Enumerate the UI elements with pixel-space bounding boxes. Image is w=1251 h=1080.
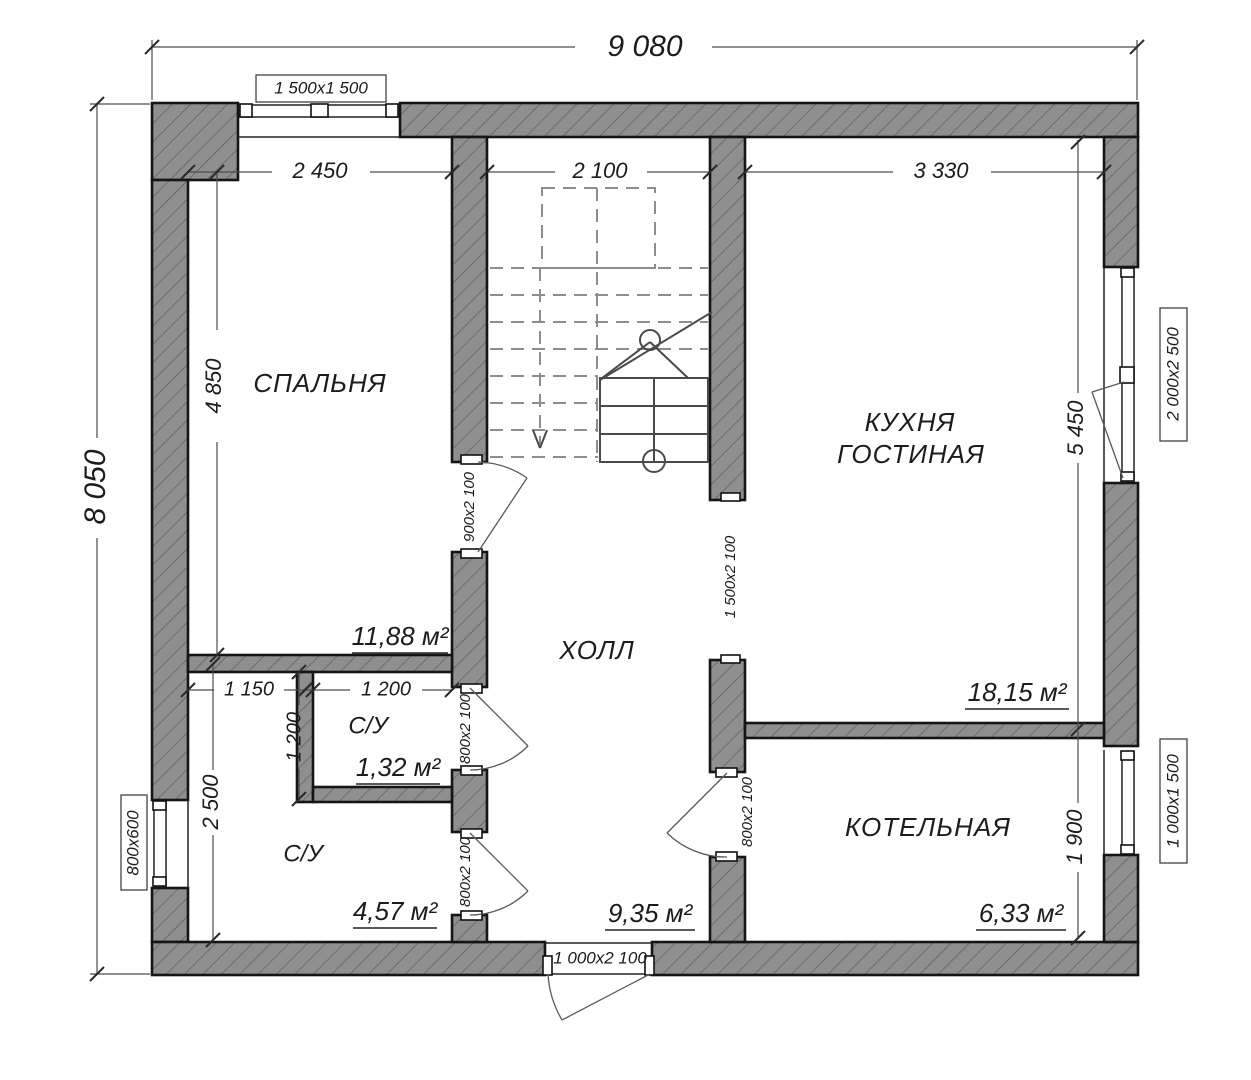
- area-kitchen: 18,15 м²: [968, 677, 1068, 707]
- window-label-top-text: 1 500x1 500: [274, 78, 368, 97]
- wall-right-lower: [1104, 855, 1138, 942]
- door-boiler: [667, 768, 737, 861]
- door-label-su-small: 800x2 100: [457, 693, 474, 764]
- dim-su-small-width: 1 200: [361, 678, 411, 700]
- wall-bedroom-stairs-1: [452, 137, 487, 462]
- room-label-hall: ХОЛЛ: [558, 635, 634, 665]
- window-left: [153, 800, 188, 888]
- window-label-left: 800x600: [121, 795, 147, 890]
- dim-bedroom-height: 4 850: [201, 358, 226, 414]
- window-kitchen: [1092, 267, 1134, 483]
- wall-top-left-corner: [152, 103, 238, 180]
- wall-hall-boiler-1: [710, 660, 745, 772]
- stair-post-top: [640, 330, 660, 350]
- wall-right-upper: [1104, 137, 1138, 267]
- wall-kitchen-boiler: [745, 723, 1104, 738]
- wall-stairs-kitchen: [710, 137, 745, 500]
- window-label-kitchen: 2 000x2 500: [1160, 308, 1187, 441]
- window-label-boiler-text: 1 000x1 500: [1163, 754, 1182, 848]
- area-su-small: 1,32 м²: [356, 752, 442, 782]
- area-su-big: 4,57 м²: [353, 896, 439, 926]
- staircase: [490, 188, 712, 472]
- room-label-kitchen-line1: КУХНЯ: [865, 407, 956, 437]
- dim-kitchen-width: 3 330: [913, 158, 969, 183]
- wall-bottom-left: [152, 942, 545, 975]
- dim-kitchen-height: 5 450: [1063, 400, 1088, 456]
- dim-su-small-height: 1 200: [283, 712, 305, 762]
- floor-plan-svg: 9 080 8 050 2 450 2 100 3 330 4 850 5 45…: [0, 0, 1251, 1080]
- room-label-su-small: С/У: [348, 712, 390, 739]
- wall-bedroom-stairs-2: [452, 552, 487, 687]
- room-label-boiler: КОТЕЛЬНАЯ: [845, 812, 1011, 842]
- door-label-kitchen-opening: 1 500x2 100: [722, 535, 739, 618]
- door-label-su-big: 800x2 100: [457, 836, 474, 907]
- room-label-bedroom: СПАЛЬНЯ: [253, 368, 386, 398]
- wall-bottom-right: [652, 942, 1138, 975]
- wall-top: [400, 103, 1138, 137]
- window-label-boiler: 1 000x1 500: [1160, 739, 1187, 863]
- wall-bedroom-bottom: [188, 655, 452, 672]
- dim-overall-height: 8 050: [79, 449, 112, 524]
- window-label-top: 1 500x1 500: [256, 75, 386, 102]
- wall-hall-boiler-2: [710, 857, 745, 942]
- door-label-entrance: 1 000x2 100: [553, 948, 647, 967]
- window-label-kitchen-text: 2 000x2 500: [1163, 327, 1182, 422]
- door-label-boiler: 800x2 100: [739, 776, 756, 847]
- dim-su-big-height: 2 500: [198, 774, 223, 831]
- wall-left-upper: [152, 180, 188, 800]
- door-label-bedroom: 900x2 100: [461, 471, 478, 542]
- room-label-su-big: С/У: [283, 840, 325, 867]
- floor-plan-drawing: 9 080 8 050 2 450 2 100 3 330 4 850 5 45…: [0, 0, 1251, 1080]
- wall-left-lower: [152, 888, 188, 942]
- room-label-kitchen-line2: ГОСТИНАЯ: [837, 439, 985, 469]
- area-boiler: 6,33 м²: [979, 898, 1065, 928]
- dim-overall-width: 9 080: [607, 30, 682, 63]
- window-label-left-text: 800x600: [123, 810, 142, 876]
- window-boiler: [1104, 750, 1134, 855]
- stair-arrow: [533, 430, 540, 448]
- area-bedroom: 11,88 м²: [352, 621, 450, 651]
- wall-right-middle: [1104, 483, 1138, 746]
- wall-su-hall: [452, 770, 487, 832]
- dim-bedroom-width: 2 450: [291, 158, 348, 183]
- dim-su-left-width: 1 150: [224, 678, 274, 700]
- dim-stair-width: 2 100: [571, 158, 628, 183]
- window-top: [238, 104, 400, 137]
- dim-boiler-height: 1 900: [1062, 809, 1087, 865]
- wall-su-small-bottom: [313, 787, 452, 802]
- area-hall: 9,35 м²: [608, 898, 694, 928]
